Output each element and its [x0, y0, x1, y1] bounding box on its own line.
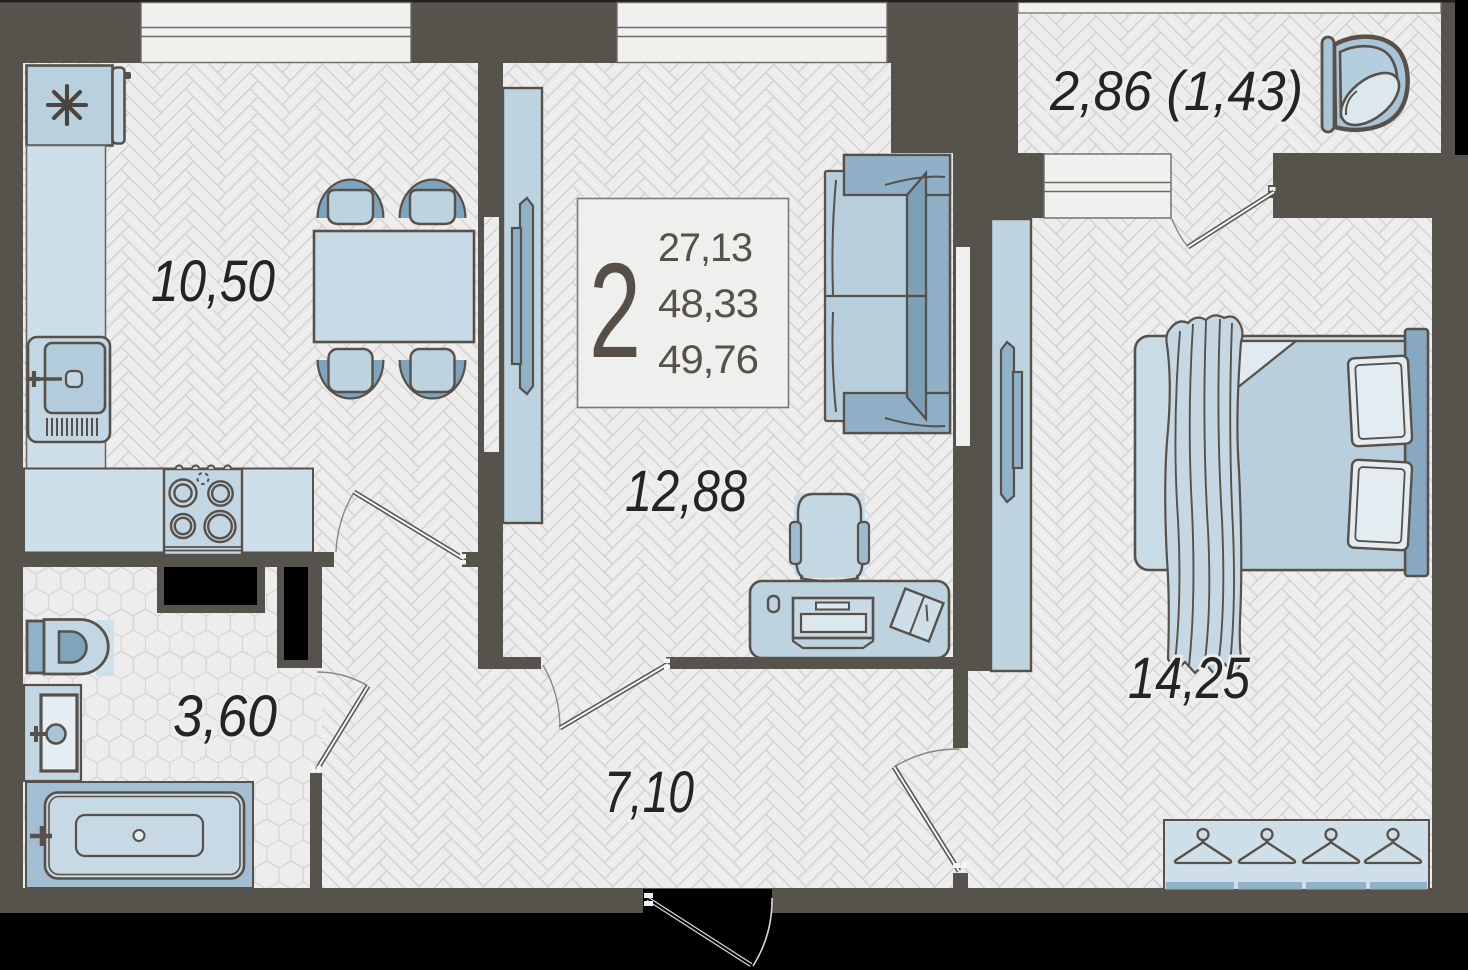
svg-text:12,88: 12,88	[625, 459, 747, 524]
svg-text:48,33: 48,33	[658, 282, 758, 326]
svg-text:2,86 (1,43): 2,86 (1,43)	[1049, 59, 1303, 122]
svg-text:7,10: 7,10	[604, 760, 694, 825]
svg-text:10,50: 10,50	[151, 249, 275, 314]
svg-text:3,60: 3,60	[173, 684, 277, 749]
svg-text:2: 2	[589, 235, 641, 386]
svg-text:14,25: 14,25	[1128, 646, 1251, 711]
svg-text:27,13: 27,13	[658, 226, 752, 270]
svg-text:49,76: 49,76	[658, 338, 758, 382]
